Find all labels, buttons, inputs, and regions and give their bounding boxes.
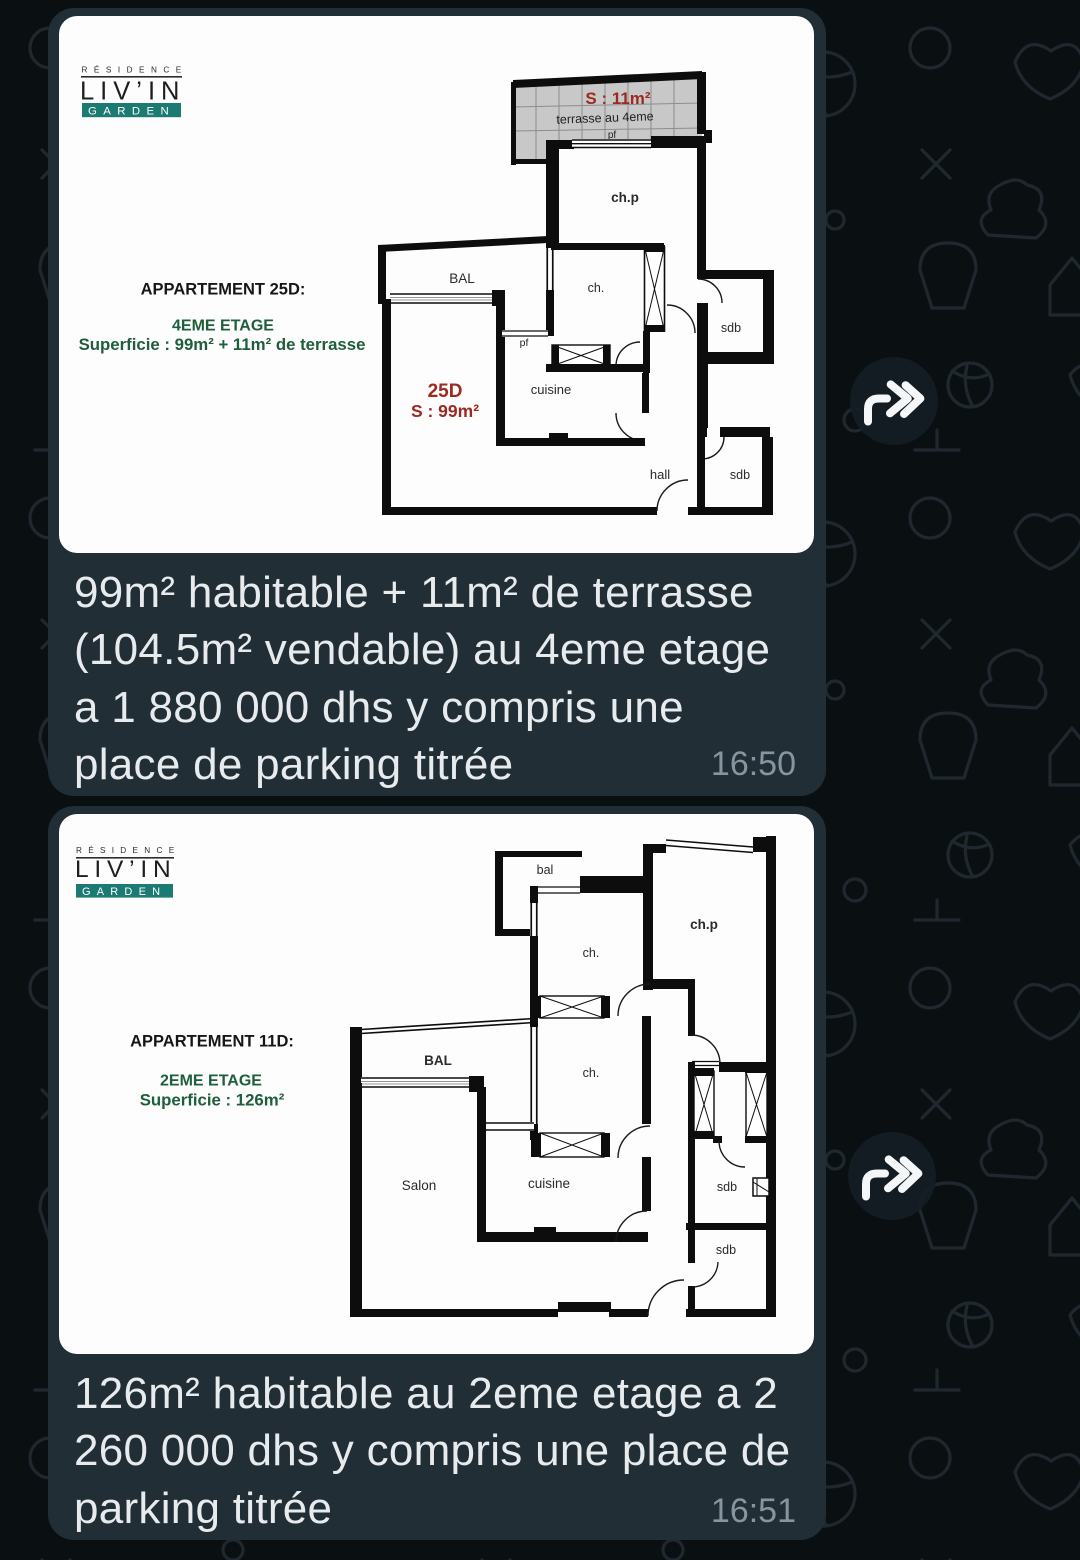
svg-text:ch.p: ch.p xyxy=(611,190,639,205)
svg-text:25D: 25D xyxy=(428,381,463,402)
svg-text:ch.p: ch.p xyxy=(690,917,718,932)
svg-text:hall: hall xyxy=(650,467,670,482)
svg-text:sdb: sdb xyxy=(730,468,750,482)
svg-text:Salon: Salon xyxy=(402,1178,437,1193)
svg-text:RÉSIDENCE: RÉSIDENCE xyxy=(82,65,188,75)
svg-text:2EME ETAGE: 2EME ETAGE xyxy=(160,1073,262,1090)
svg-text:BAL: BAL xyxy=(424,1053,452,1068)
svg-text:sdb: sdb xyxy=(716,1243,736,1257)
svg-text:Superficie : 126m²: Superficie : 126m² xyxy=(140,1091,285,1110)
svg-text:S : 11m²: S : 11m² xyxy=(585,89,651,108)
svg-text:ch.: ch. xyxy=(588,281,605,295)
svg-text:BAL: BAL xyxy=(449,271,475,286)
svg-text:RÉSIDENCE: RÉSIDENCE xyxy=(76,845,180,855)
svg-text:GARDEN: GARDEN xyxy=(82,886,166,898)
svg-text:cuisine: cuisine xyxy=(528,1176,570,1191)
svg-text:pf: pf xyxy=(520,337,529,349)
svg-text:GARDEN: GARDEN xyxy=(88,106,175,118)
svg-text:ch.: ch. xyxy=(583,946,600,960)
svg-text:APPARTEMENT 25D:: APPARTEMENT 25D: xyxy=(141,281,306,299)
svg-text:LIV’IN: LIV’IN xyxy=(75,856,177,883)
svg-text:APPARTEMENT 11D:: APPARTEMENT 11D: xyxy=(130,1033,294,1051)
svg-text:bal: bal xyxy=(537,863,554,877)
svg-text:cuisine: cuisine xyxy=(531,382,571,397)
svg-text:LIV’IN: LIV’IN xyxy=(80,78,185,106)
svg-text:ch.: ch. xyxy=(583,1066,600,1080)
svg-text:sdb: sdb xyxy=(717,1180,737,1194)
svg-text:4EME ETAGE: 4EME ETAGE xyxy=(172,318,274,335)
svg-text:S : 99m²: S : 99m² xyxy=(411,401,479,421)
svg-text:Superficie : 99m² + 11m² de te: Superficie : 99m² + 11m² de terrasse xyxy=(79,335,366,354)
svg-text:sdb: sdb xyxy=(721,321,741,335)
